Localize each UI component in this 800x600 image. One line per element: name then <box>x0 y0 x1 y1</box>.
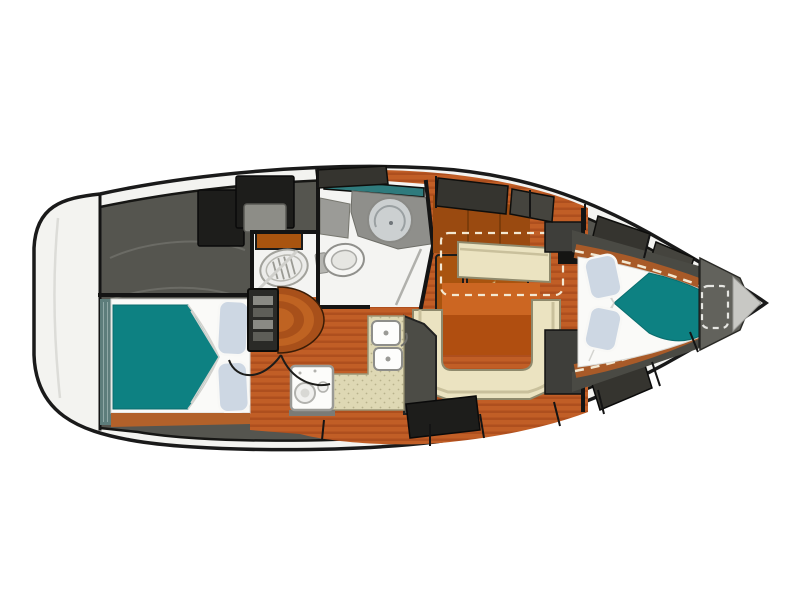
floor-plan-canvas <box>0 0 800 600</box>
head-locker <box>320 198 350 238</box>
shower-cabinet <box>256 233 302 249</box>
deck-hatch <box>406 396 480 438</box>
bedhead-strip <box>100 299 111 425</box>
boat-floor-plan <box>0 0 800 600</box>
steps-tread <box>253 308 273 317</box>
sink-drain <box>386 357 391 362</box>
sink-drain <box>389 221 393 225</box>
bow-tip <box>733 277 761 331</box>
stove-burner-center <box>301 389 310 398</box>
sink-drain <box>384 331 389 336</box>
stove-knob <box>314 370 317 373</box>
deck-hatch <box>316 166 388 188</box>
aft-pillow <box>217 361 250 413</box>
aft-pillow <box>217 300 250 355</box>
head-compartment <box>314 174 433 307</box>
nav-settee <box>458 242 550 282</box>
galley-side-wall <box>404 316 436 414</box>
stove-burner-small <box>318 382 328 392</box>
cockpit-panel <box>244 204 286 232</box>
anchor-locker <box>700 258 761 350</box>
salon-table-top <box>442 283 540 315</box>
steps-tread <box>253 296 273 305</box>
salon-table-base <box>442 315 540 355</box>
steps-tread <box>253 332 273 341</box>
steps-tread <box>253 320 273 329</box>
stove-knob <box>299 372 302 375</box>
